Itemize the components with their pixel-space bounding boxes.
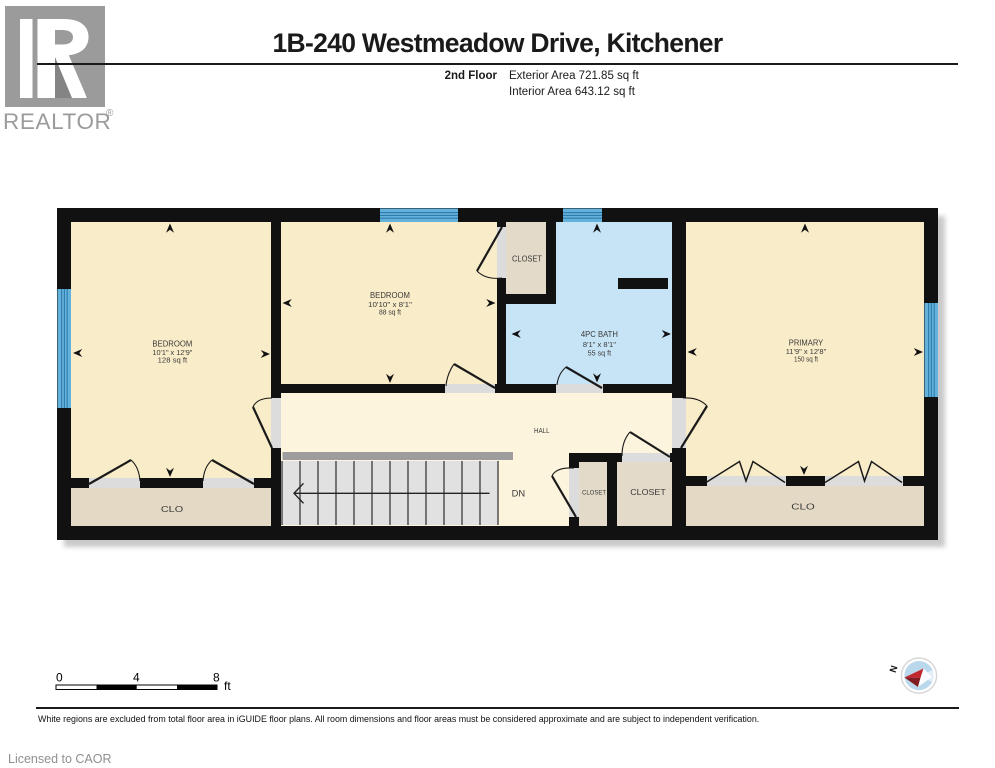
svg-text:8: 8 xyxy=(213,671,220,685)
svg-text:DN: DN xyxy=(512,489,526,499)
svg-text:0: 0 xyxy=(56,671,63,685)
svg-text:N: N xyxy=(888,664,901,674)
svg-text:128 sq ft: 128 sq ft xyxy=(158,355,188,364)
svg-text:88 sq ft: 88 sq ft xyxy=(379,308,401,317)
svg-text:BEDROOM: BEDROOM xyxy=(370,291,410,300)
svg-text:150 sq ft: 150 sq ft xyxy=(794,354,818,363)
svg-text:CLOSET: CLOSET xyxy=(582,491,606,497)
svg-text:CLO: CLO xyxy=(791,501,815,511)
svg-text:4PC BATH: 4PC BATH xyxy=(581,330,618,339)
svg-text:CLO: CLO xyxy=(161,504,184,514)
svg-text:HALL: HALL xyxy=(534,426,550,435)
svg-text:55 sq ft: 55 sq ft xyxy=(588,348,612,357)
svg-text:CLOSET: CLOSET xyxy=(630,487,666,497)
svg-text:CLOSET: CLOSET xyxy=(512,255,542,264)
svg-text:4: 4 xyxy=(133,671,140,685)
svg-text:ft: ft xyxy=(224,679,231,693)
